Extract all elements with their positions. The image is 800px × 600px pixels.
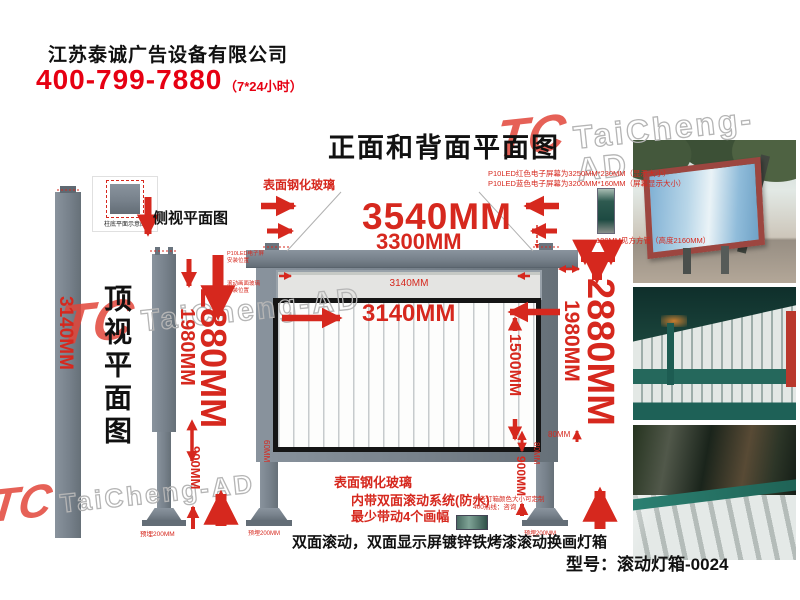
front-pole-height: 900MM [514, 456, 528, 496]
tube-note: 120MM见方方管（高度2160MM） [596, 235, 710, 246]
side-view-pole-lower [157, 432, 171, 508]
glass-note-top: 表面钢化玻璃 [263, 176, 335, 193]
front-base-plate-left [246, 520, 292, 526]
custom-note-line: 广告灯箱颜色大小可定制 [473, 496, 545, 504]
photo-light-glow [661, 315, 687, 327]
bottom-caption: 双面滚动，双面显示屏镀锌铁烤漆滚动换画灯箱 [292, 531, 607, 552]
callout-line: 安装位置 [227, 258, 264, 265]
phone-number: 400-799-7880 [36, 64, 222, 96]
photo-beam [633, 369, 796, 384]
glass-note-bottom: 表面钢化玻璃 [334, 472, 412, 491]
top-view-dimension: 3140MM [54, 296, 76, 370]
callout-screen-position: 滚动画面玻璃 安装位置 [227, 281, 260, 294]
led-pole-photo [597, 188, 615, 234]
base-plate-inset-diagram: 柱底平面示意图 [92, 176, 158, 232]
screen-height: 1500MM [505, 334, 523, 396]
callout-led-position: P10LED电子屏 安装位置 [227, 251, 264, 264]
led-note-2: P10LED蓝色电子屏幕为3200MM*160MM（屏幕显示大小） [488, 178, 686, 189]
side-base-note: 预埋200MM [140, 528, 175, 538]
side-pole-height: 900MM [188, 446, 203, 489]
photo-post [667, 323, 674, 385]
mechanism-photo [456, 515, 488, 530]
photo-leg [721, 246, 729, 274]
photo-red-strip [786, 311, 796, 387]
page-title: 正面和背面平面图 [328, 126, 560, 165]
callout-line: 滚动画面玻璃 [227, 281, 260, 288]
watermark-bottom-left: TC TaiCheng-AD [0, 460, 256, 524]
screen-width: 3140MM [362, 300, 455, 328]
callout-line: P10LED电子屏 [227, 251, 264, 258]
front-base-plate-right [522, 520, 568, 526]
front-base-note-left: 预埋200MM [248, 528, 280, 537]
photo-shelter [633, 287, 796, 420]
side-view-pole-upper [152, 254, 176, 432]
callout-line: 安装位置 [227, 288, 260, 295]
phone-hours: （7*24小时） [224, 76, 303, 95]
led-strip-dimension: 3140MM [278, 278, 540, 289]
top-view-label: 顶视平面图 [96, 284, 136, 449]
top-view-bar-cap [60, 186, 76, 193]
side-view-pole-tab [155, 247, 160, 255]
inset-caption: 柱底平面示意图 [95, 219, 155, 228]
side-view-base-plate [142, 520, 186, 526]
side-total-height: 2880MM [192, 288, 234, 428]
width-frame: 3300MM [376, 229, 462, 255]
system-note-2: 最少带动4个画幅 [351, 506, 449, 525]
custom-note: 广告灯箱颜色大小可定制 400热线：咨询 [473, 496, 545, 511]
led-strip-panel: 3140MM [276, 270, 542, 300]
photo-street-lightbox [633, 140, 796, 283]
construction-line [287, 192, 341, 251]
photo-leg [683, 248, 691, 274]
front-total-height: 2880MM [578, 278, 621, 426]
edge-note-right: 80MM [532, 442, 541, 464]
photo-glass-closeup [633, 425, 796, 560]
base-plate-square [110, 184, 140, 214]
side-view-pole-tab [168, 247, 173, 255]
front-pole-left [260, 462, 278, 510]
edge-note-top: 80MM [548, 430, 570, 439]
side-view-label: 侧视平面图 [153, 207, 228, 228]
photo-roof [633, 287, 796, 357]
company-name: 江苏泰诚广告设备有限公司 [48, 40, 288, 67]
edge-note-left: 60MM [262, 440, 271, 462]
spec-sheet-page: 江苏泰诚广告设备有限公司 400-799-7880 （7*24小时） 正面和背面… [0, 0, 800, 600]
custom-note-line: 400热线：咨询 [473, 504, 545, 512]
taicheng-logo-icon: TC [0, 481, 54, 525]
model-label: 型号：滚动灯箱-0024 [566, 550, 728, 575]
